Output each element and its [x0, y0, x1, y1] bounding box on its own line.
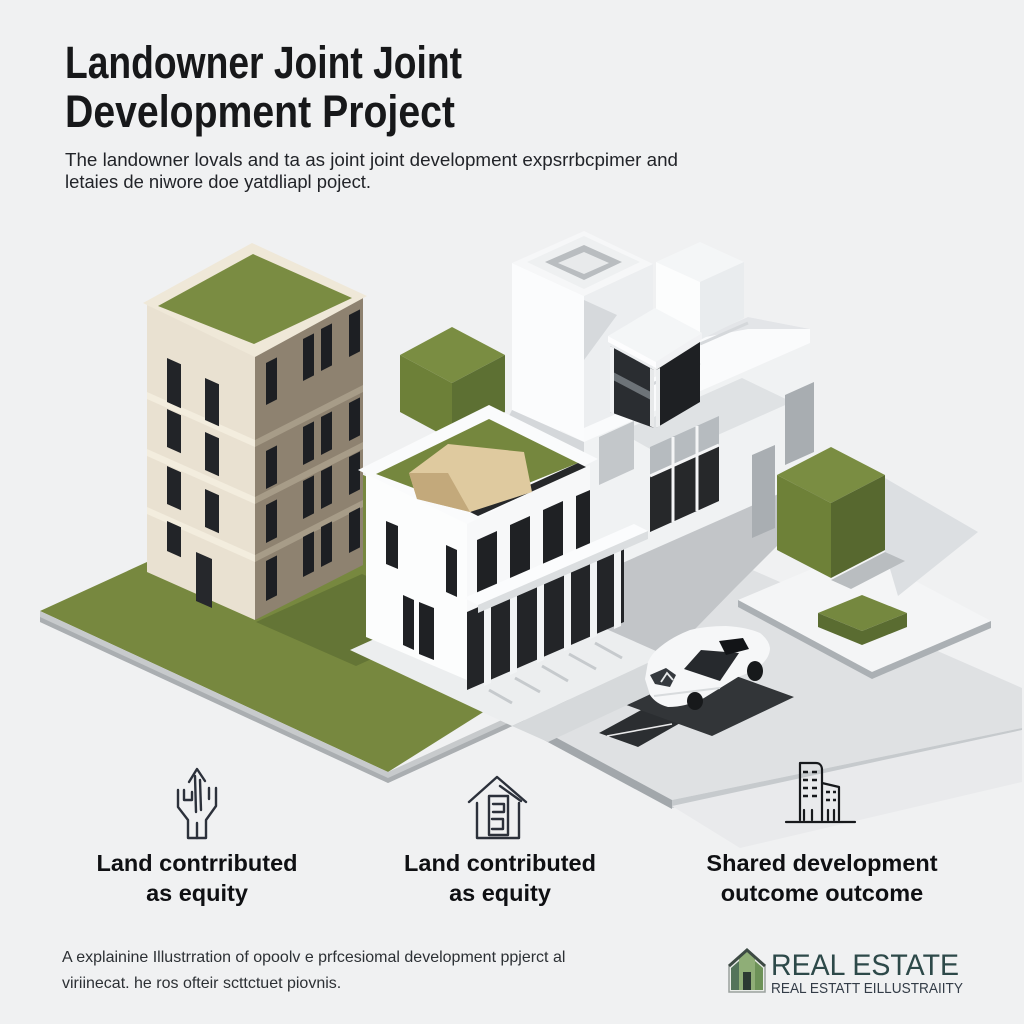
- svg-text:as equity: as equity: [146, 880, 248, 906]
- svg-text:viriinecat. he ros ofteir sctt: viriinecat. he ros ofteir scttctuet piov…: [62, 975, 341, 992]
- svg-text:The landowner lovals and ta as: The landowner lovals and ta as joint joi…: [65, 149, 678, 170]
- svg-text:Landowner Joint Joint: Landowner Joint Joint: [65, 37, 462, 88]
- svg-text:outcome outcome: outcome outcome: [721, 880, 923, 906]
- svg-text:as equity: as equity: [449, 880, 551, 906]
- svg-text:Land contrributed: Land contrributed: [96, 850, 297, 876]
- svg-text:Land contributed: Land contributed: [404, 850, 596, 876]
- svg-text:Shared development: Shared development: [706, 850, 937, 876]
- svg-text:REAL ESTATE: REAL ESTATE: [771, 949, 959, 982]
- svg-text:REAL ESTATT EILLUSTRAIITY: REAL ESTATT EILLUSTRAIITY: [771, 981, 963, 997]
- svg-text:A explainine Illustrration of: A explainine Illustrration of opoolv e p…: [62, 949, 565, 966]
- svg-text:letaies de niwore doe yatdliap: letaies de niwore doe yatdliapl poject.: [65, 171, 371, 192]
- svg-text:Development Project: Development Project: [65, 86, 455, 137]
